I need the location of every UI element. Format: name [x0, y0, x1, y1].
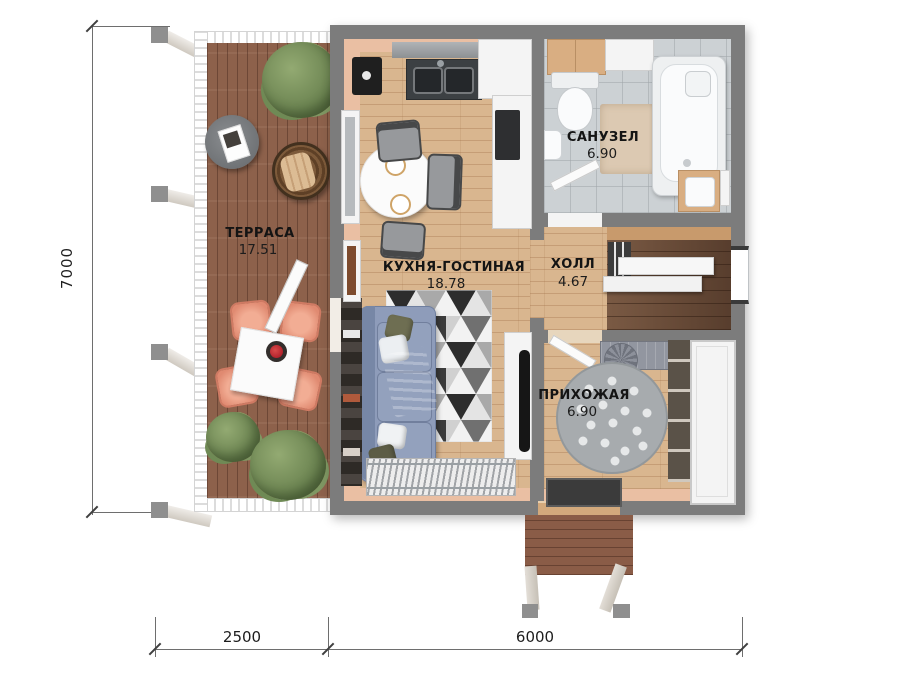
entry-label: ПРИХОЖАЯ [504, 388, 664, 403]
entry-area: 6.90 [502, 404, 662, 420]
bathroom-area: 6.90 [522, 146, 682, 162]
floor-plan: 7000 2500 6000 [0, 0, 900, 675]
hall-area: 4.67 [493, 274, 653, 290]
hall-label: ХОЛЛ [493, 257, 653, 272]
terrace-area: 17.51 [178, 242, 338, 258]
porch-post-cap [522, 604, 538, 618]
porch [0, 0, 900, 675]
porch-post-cap [613, 604, 630, 618]
bathroom-label: САНУЗЕЛ [523, 130, 683, 145]
terrace-label: ТЕРРАСА [180, 226, 340, 241]
